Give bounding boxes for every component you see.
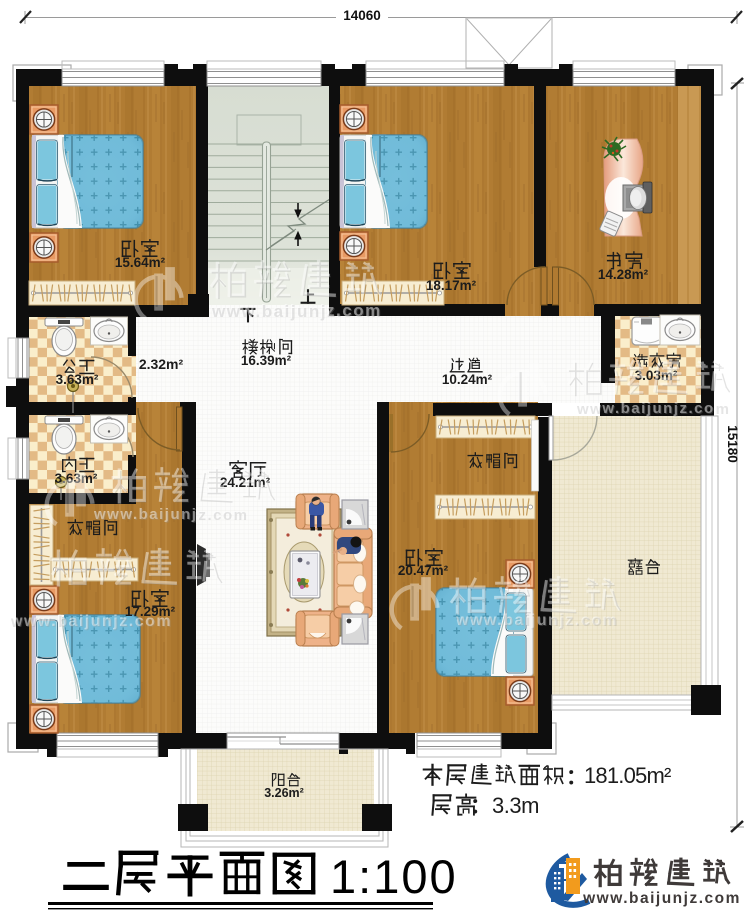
- svg-text:14.28m²: 14.28m²: [598, 267, 649, 282]
- svg-text:18.17m²: 18.17m²: [426, 278, 477, 293]
- svg-text:181.05m²: 181.05m²: [584, 763, 671, 788]
- svg-text:14060: 14060: [343, 8, 381, 23]
- svg-text:www.baijunjz.com: www.baijunjz.com: [576, 401, 730, 418]
- svg-text:3.26m²: 3.26m²: [264, 786, 304, 800]
- svg-text:1:100: 1:100: [330, 850, 458, 903]
- svg-text:10.24m²: 10.24m²: [442, 372, 493, 387]
- svg-text:www.baijunjz.com: www.baijunjz.com: [582, 890, 741, 907]
- svg-text:www.baijunjz.com: www.baijunjz.com: [10, 614, 173, 631]
- svg-text:3.3m: 3.3m: [492, 793, 539, 818]
- svg-text:20.47m²: 20.47m²: [398, 563, 449, 578]
- svg-text:www.baijunjz.com: www.baijunjz.com: [94, 507, 248, 524]
- svg-text:2.32m²: 2.32m²: [139, 356, 184, 372]
- svg-text:3.63m²: 3.63m²: [56, 372, 99, 387]
- svg-text:：: ：: [470, 795, 491, 818]
- svg-text:www.baijunjz.com: www.baijunjz.com: [456, 613, 619, 630]
- svg-text:16.39m²: 16.39m²: [241, 353, 292, 368]
- svg-text:15180: 15180: [725, 425, 740, 463]
- svg-text:15.64m²: 15.64m²: [115, 255, 166, 270]
- svg-text:www.baijunjz.com: www.baijunjz.com: [211, 302, 383, 321]
